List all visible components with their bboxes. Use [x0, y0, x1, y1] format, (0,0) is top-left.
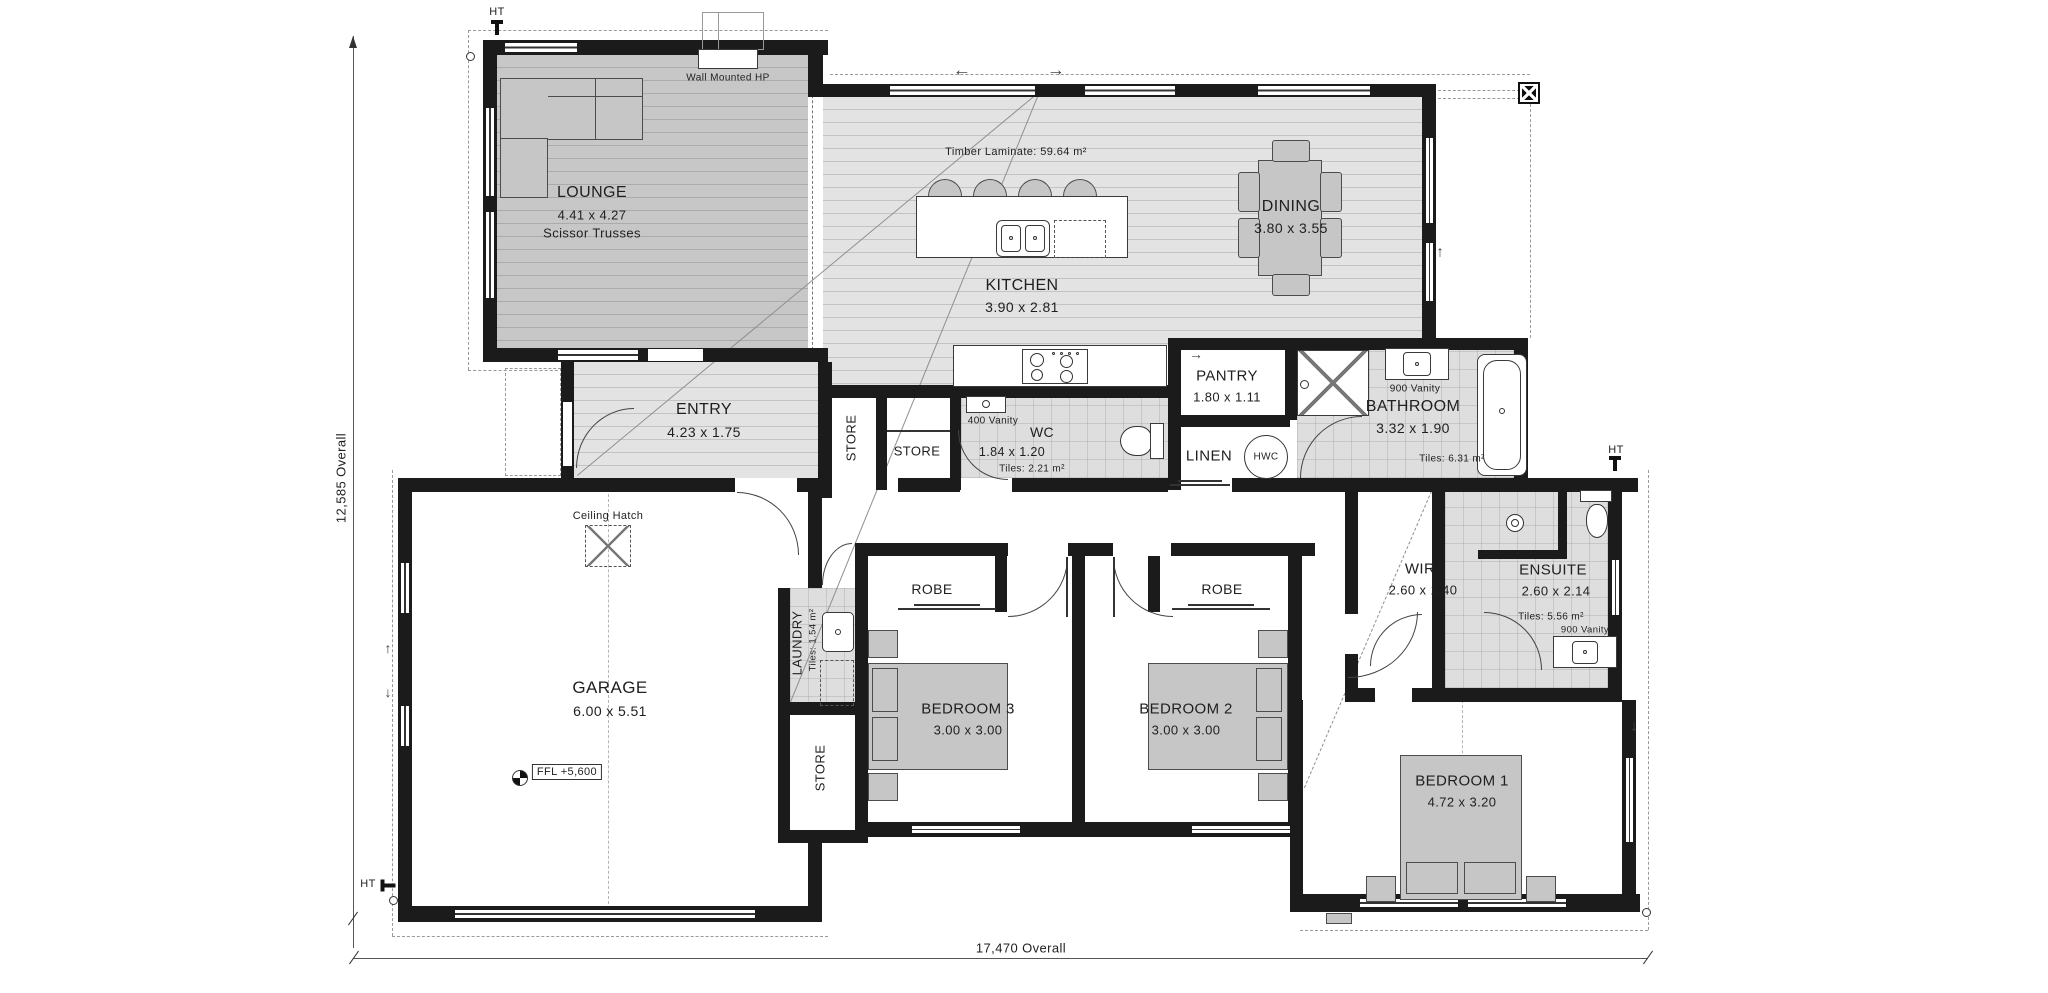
wall	[398, 478, 735, 492]
linen-slider-door	[1170, 484, 1230, 486]
ht-marker-label: HT	[489, 6, 504, 18]
kitchen-floor-strip	[823, 345, 955, 385]
window	[1612, 560, 1619, 615]
pantry-arrow-icon: →	[1189, 346, 1203, 362]
arrow-down-icon: ↓	[1630, 718, 1638, 735]
bathroom-tiles-note: Tiles: 6.31 m²	[1419, 454, 1485, 465]
lounge-size: 4.41 x 4.27	[558, 208, 627, 223]
bedside-table	[1258, 630, 1288, 658]
wc-size: 1.84 x 1.20	[979, 445, 1045, 459]
eave-line	[392, 470, 393, 936]
ffl-survey-marker	[512, 770, 528, 786]
window	[486, 108, 494, 196]
arrow-right-icon: →	[1047, 60, 1065, 81]
wall	[1432, 688, 1622, 702]
bedside-table	[868, 630, 898, 658]
hose-tap-icon	[1613, 460, 1617, 471]
bedroom3-size: 3.00 x 3.00	[934, 723, 1003, 738]
window	[1192, 826, 1300, 833]
wall	[1232, 478, 1638, 492]
bedside-table	[1258, 773, 1288, 801]
robe-slider	[898, 608, 996, 610]
lounge-kitchen-divider	[812, 60, 813, 360]
bathtub-inner	[1483, 360, 1521, 470]
wir-label: WIR	[1405, 561, 1435, 578]
pantry-size: 1.80 x 1.11	[1193, 390, 1261, 405]
linen-slider-door	[1178, 480, 1222, 482]
wall	[1345, 688, 1375, 702]
timber-laminate-note: Timber Laminate: 59.64 m²	[945, 146, 1087, 158]
basin-drain	[1415, 362, 1419, 366]
dining-chair	[1272, 274, 1310, 296]
wall	[1290, 700, 1303, 906]
eave-line	[1438, 98, 1520, 99]
burner	[1030, 353, 1044, 367]
wall	[1285, 338, 1297, 420]
wall	[1168, 338, 1181, 490]
store-hall-label: STORE	[844, 415, 859, 462]
ffl-label: FFL +5,600	[532, 764, 602, 780]
wall	[898, 478, 960, 492]
dining-chair	[1238, 172, 1260, 212]
wall	[868, 543, 1008, 556]
garage-door	[455, 910, 755, 918]
eave-line	[830, 74, 1530, 75]
downpipe	[389, 896, 398, 905]
dimension-line-vertical	[353, 36, 354, 948]
lounge-note: Scissor Trusses	[543, 226, 641, 241]
dining-size: 3.80 x 3.55	[1254, 220, 1328, 236]
garage-size: 6.00 x 5.51	[573, 703, 647, 719]
arrow-left-icon: ←	[953, 60, 971, 81]
bedroom2-door-leaf	[1113, 557, 1115, 617]
ceiling-hatch-x	[586, 526, 630, 566]
laundry-label: LAUNDRY	[790, 611, 805, 676]
cooktop-knob	[1060, 352, 1063, 355]
ht-marker-label: HT	[1608, 444, 1623, 456]
washing-machine	[820, 660, 854, 706]
cooktop-knob	[1052, 352, 1055, 355]
laundry-door-arc	[737, 492, 799, 555]
wall	[1168, 338, 1290, 350]
eave-line	[1530, 104, 1531, 338]
bathroom-size: 3.32 x 1.90	[1376, 420, 1450, 436]
window	[1626, 758, 1633, 842]
wall	[1072, 556, 1085, 822]
eave-line	[392, 936, 828, 937]
window	[401, 706, 409, 746]
robe-wall	[995, 556, 1007, 612]
shower-wall	[1478, 550, 1566, 559]
wc-basin	[982, 400, 990, 408]
eave-line	[468, 30, 469, 370]
bedroom3-door-leaf	[1066, 557, 1068, 617]
robe-slider	[914, 604, 980, 606]
store-mid-label: STORE	[894, 444, 941, 459]
cooktop-knob	[1076, 352, 1079, 355]
window	[401, 563, 409, 613]
bedroom1-size: 4.72 x 3.20	[1428, 795, 1497, 810]
hp-outdoor-unit-line	[718, 12, 719, 50]
arrow-up-icon: ↑	[1436, 244, 1444, 261]
hp-outdoor-unit	[702, 12, 764, 50]
wir-size: 2.60 x 1.40	[1389, 583, 1458, 598]
ensuite-toilet-tank	[1580, 490, 1612, 502]
bedroom3-label: BEDROOM 3	[921, 701, 1015, 718]
sink-drain	[1009, 236, 1013, 240]
garage-label: GARAGE	[572, 678, 647, 698]
eave-line	[468, 30, 828, 31]
laundry-tiles-note: Tiles: 1.54 m²	[808, 609, 819, 672]
wall	[808, 55, 823, 97]
overall-height-dimension: 12,585 Overall	[334, 433, 349, 523]
shower-head	[1300, 380, 1309, 389]
window	[912, 826, 1020, 833]
wall	[1412, 688, 1432, 702]
wall	[778, 715, 790, 830]
wall	[483, 55, 497, 362]
ensuite-size: 2.60 x 2.14	[1522, 584, 1591, 599]
pillow	[1256, 717, 1282, 761]
pillow	[1406, 862, 1458, 894]
wall-mounted-hp-label: Wall Mounted HP	[686, 73, 769, 84]
ensuite-vanity-label: 900 Vanity	[1561, 625, 1609, 636]
ensuite-toilet-bowl	[1586, 504, 1608, 538]
pillow	[872, 717, 898, 761]
hwc-label: HWC	[1253, 452, 1278, 463]
laundry-tub-drain	[835, 629, 841, 635]
burner	[1031, 369, 1043, 381]
entry-label: ENTRY	[676, 401, 732, 419]
cooktop-knob	[1068, 352, 1071, 355]
dining-chair	[1272, 140, 1310, 162]
shower-wall	[1558, 490, 1567, 559]
sink-drain	[1033, 236, 1037, 240]
eave-line	[1300, 930, 1648, 931]
wall	[778, 588, 790, 715]
entry-size: 4.23 x 1.75	[667, 424, 741, 440]
store-laundry-label: STORE	[813, 745, 828, 792]
floor-plan: ← → ↑ ↑ ↓ ↓ → LOUNGE 4.41 x 4.27 Scissor…	[0, 0, 2048, 993]
burner	[1060, 355, 1073, 368]
ensuite-label: ENSUITE	[1519, 562, 1587, 579]
wall	[855, 543, 868, 835]
bedside-table	[1366, 876, 1396, 902]
wc-toilet-bowl	[1120, 426, 1152, 456]
ceiling-hatch-label: Ceiling Hatch	[573, 510, 644, 522]
dining-table	[1258, 160, 1322, 276]
bedroom3-door-arc	[1008, 557, 1068, 617]
eave-line	[1648, 470, 1649, 930]
overall-width-dimension: 17,470 Overall	[976, 941, 1066, 956]
eave-line	[1438, 90, 1520, 91]
bathroom-label: BATHROOM	[1366, 398, 1460, 416]
front-door-opening	[563, 402, 572, 466]
window	[505, 43, 577, 52]
bedroom1-door-arc	[1348, 612, 1418, 678]
pillow	[1464, 862, 1516, 894]
robe-slider	[1188, 604, 1254, 606]
pillow	[1256, 668, 1282, 712]
store-shelf-line	[887, 430, 950, 432]
pantry-label: PANTRY	[1196, 368, 1258, 385]
dimension-arrow-up	[349, 36, 357, 48]
window	[890, 86, 1035, 95]
sofa	[500, 78, 643, 140]
bedroom2-label: BEDROOM 2	[1139, 701, 1233, 718]
bedroom2-door-arc	[1113, 557, 1173, 617]
window	[558, 350, 638, 360]
dishwasher	[1054, 220, 1106, 258]
wall	[808, 492, 822, 588]
robe-slider	[1172, 608, 1270, 610]
wc-label: WC	[1030, 424, 1054, 440]
wc-toilet-tank	[1150, 423, 1164, 459]
window	[1085, 86, 1175, 95]
dining-chair	[1320, 172, 1342, 212]
bathroom-vanity-label: 900 Vanity	[1390, 384, 1441, 395]
wall-mounted-hp-unit	[698, 49, 758, 69]
window	[486, 212, 494, 298]
kitchen-size: 3.90 x 2.81	[985, 299, 1059, 315]
basin-drain	[1583, 650, 1587, 654]
pillow	[872, 668, 898, 712]
downpipe	[1642, 908, 1651, 917]
window	[1426, 243, 1433, 301]
robe2-label: ROBE	[1201, 581, 1242, 597]
ht-marker-label: HT	[360, 878, 375, 890]
wc-tiles-note: Tiles: 2.21 m²	[999, 464, 1065, 475]
doorway	[648, 349, 703, 361]
arrow-down-icon: ↓	[385, 684, 392, 700]
dimension-line-horizontal	[353, 958, 1648, 959]
wall	[1012, 478, 1168, 492]
sofa	[500, 138, 548, 198]
hose-tap-icon	[385, 884, 396, 888]
bedroom2-size: 3.00 x 3.00	[1152, 723, 1221, 738]
hose-tap-icon	[495, 24, 499, 35]
sofa-line	[595, 78, 596, 140]
downpipe	[466, 52, 475, 61]
bedside-table	[868, 773, 898, 801]
hall-door-arc	[822, 543, 852, 585]
bedroom1-label: BEDROOM 1	[1415, 773, 1509, 790]
ensuite-shower-drain-inner	[1511, 519, 1519, 527]
vent-grille	[1326, 913, 1352, 924]
ensuite-tiles-note: Tiles: 5.56 m²	[1518, 612, 1584, 623]
wall	[797, 478, 828, 492]
porch-outline	[505, 368, 561, 476]
dining-label: DINING	[1262, 198, 1320, 216]
burner	[1060, 370, 1073, 383]
kitchen-label: KITCHEN	[985, 277, 1058, 295]
wall	[808, 830, 822, 906]
linen-label: LINEN	[1186, 448, 1232, 465]
wall	[1068, 543, 1113, 556]
bathtub-drain	[1499, 408, 1505, 414]
window	[1426, 138, 1433, 223]
wall	[876, 398, 887, 490]
arrow-up-icon: ↑	[385, 640, 392, 656]
window	[1258, 86, 1370, 95]
wall	[1181, 415, 1290, 427]
robe3-label: ROBE	[911, 581, 952, 597]
roof-post-marker	[1520, 84, 1538, 102]
wall	[1345, 492, 1358, 614]
bedside-table	[1526, 876, 1556, 902]
lounge-label: LOUNGE	[557, 184, 627, 202]
wc-vanity-label: 400 Vanity	[968, 416, 1019, 427]
